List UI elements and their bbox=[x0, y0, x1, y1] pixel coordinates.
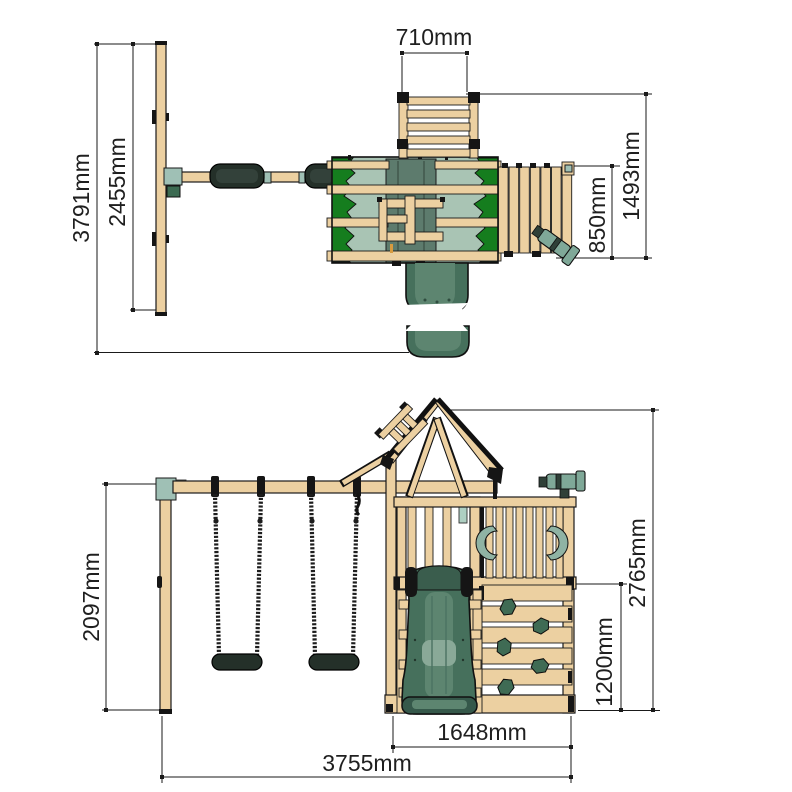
dim-overall-height: 2765mm bbox=[624, 408, 655, 712]
top-view: 3791mm 2455mm 710mm 1493mm 850mm bbox=[68, 24, 652, 357]
dim-label-710: 710mm bbox=[396, 24, 473, 50]
front-view: 2097mm 2765mm 1200mm 1648mm 3755mm bbox=[78, 399, 660, 783]
beam-bracket-top bbox=[164, 168, 182, 185]
swing-beam-top bbox=[164, 164, 339, 197]
dim-deck-depth: 850mm bbox=[584, 164, 614, 260]
dim-swing-frame-depth: 2455mm bbox=[104, 42, 135, 312]
dim-label-1200: 1200mm bbox=[591, 617, 617, 706]
dim-label-1493: 1493mm bbox=[618, 131, 644, 220]
tube-slide-front bbox=[402, 566, 477, 714]
telescope-front bbox=[539, 471, 585, 498]
swing-beam-front bbox=[173, 481, 497, 493]
dim-climbing-wall-height: 1200mm bbox=[591, 582, 623, 712]
dim-swing-frame-height: 2097mm bbox=[78, 482, 108, 712]
dim-label-2455: 2455mm bbox=[104, 137, 130, 226]
swing-rope bbox=[215, 494, 219, 656]
dim-ladder-width: 710mm bbox=[396, 24, 473, 55]
drawing-canvas: 3791mm 2455mm 710mm 1493mm 850mm bbox=[0, 0, 792, 792]
tube-slide-top bbox=[401, 263, 469, 357]
dim-label-2765: 2765mm bbox=[624, 518, 650, 607]
swing-rope bbox=[353, 494, 357, 656]
dim-overall-depth: 3791mm bbox=[68, 42, 99, 355]
climbing-wall bbox=[479, 585, 572, 696]
swing-2 bbox=[309, 494, 359, 670]
chain-hook bbox=[357, 494, 360, 515]
swing-post-front bbox=[156, 478, 186, 714]
swing-seat bbox=[212, 654, 262, 670]
dim-tower-width: 1648mm bbox=[391, 719, 573, 749]
dim-label-850: 850mm bbox=[584, 177, 610, 254]
gable-ladder-decoration bbox=[374, 400, 430, 456]
swing-rope bbox=[311, 494, 315, 656]
balustrade bbox=[476, 507, 568, 578]
dim-label-3755: 3755mm bbox=[322, 750, 411, 776]
front-extension-lines bbox=[102, 410, 660, 783]
dimension-drawing: 3791mm 2455mm 710mm 1493mm 850mm bbox=[0, 0, 792, 792]
access-ladder-top bbox=[397, 92, 480, 158]
swing-1 bbox=[212, 494, 263, 670]
dim-label-1648: 1648mm bbox=[437, 719, 526, 745]
canopy-top bbox=[327, 154, 501, 266]
dim-overall-width: 3755mm bbox=[160, 750, 573, 779]
swing-seat-top-1 bbox=[210, 164, 264, 188]
dim-label-3791: 3791mm bbox=[68, 153, 94, 242]
swing-seat bbox=[309, 654, 359, 670]
dim-platform-side-depth: 1493mm bbox=[618, 92, 648, 260]
corner-post-top bbox=[562, 162, 574, 175]
swing-rope bbox=[257, 494, 261, 656]
deck-top-rail bbox=[394, 497, 576, 507]
dim-label-2097: 2097mm bbox=[78, 552, 104, 641]
